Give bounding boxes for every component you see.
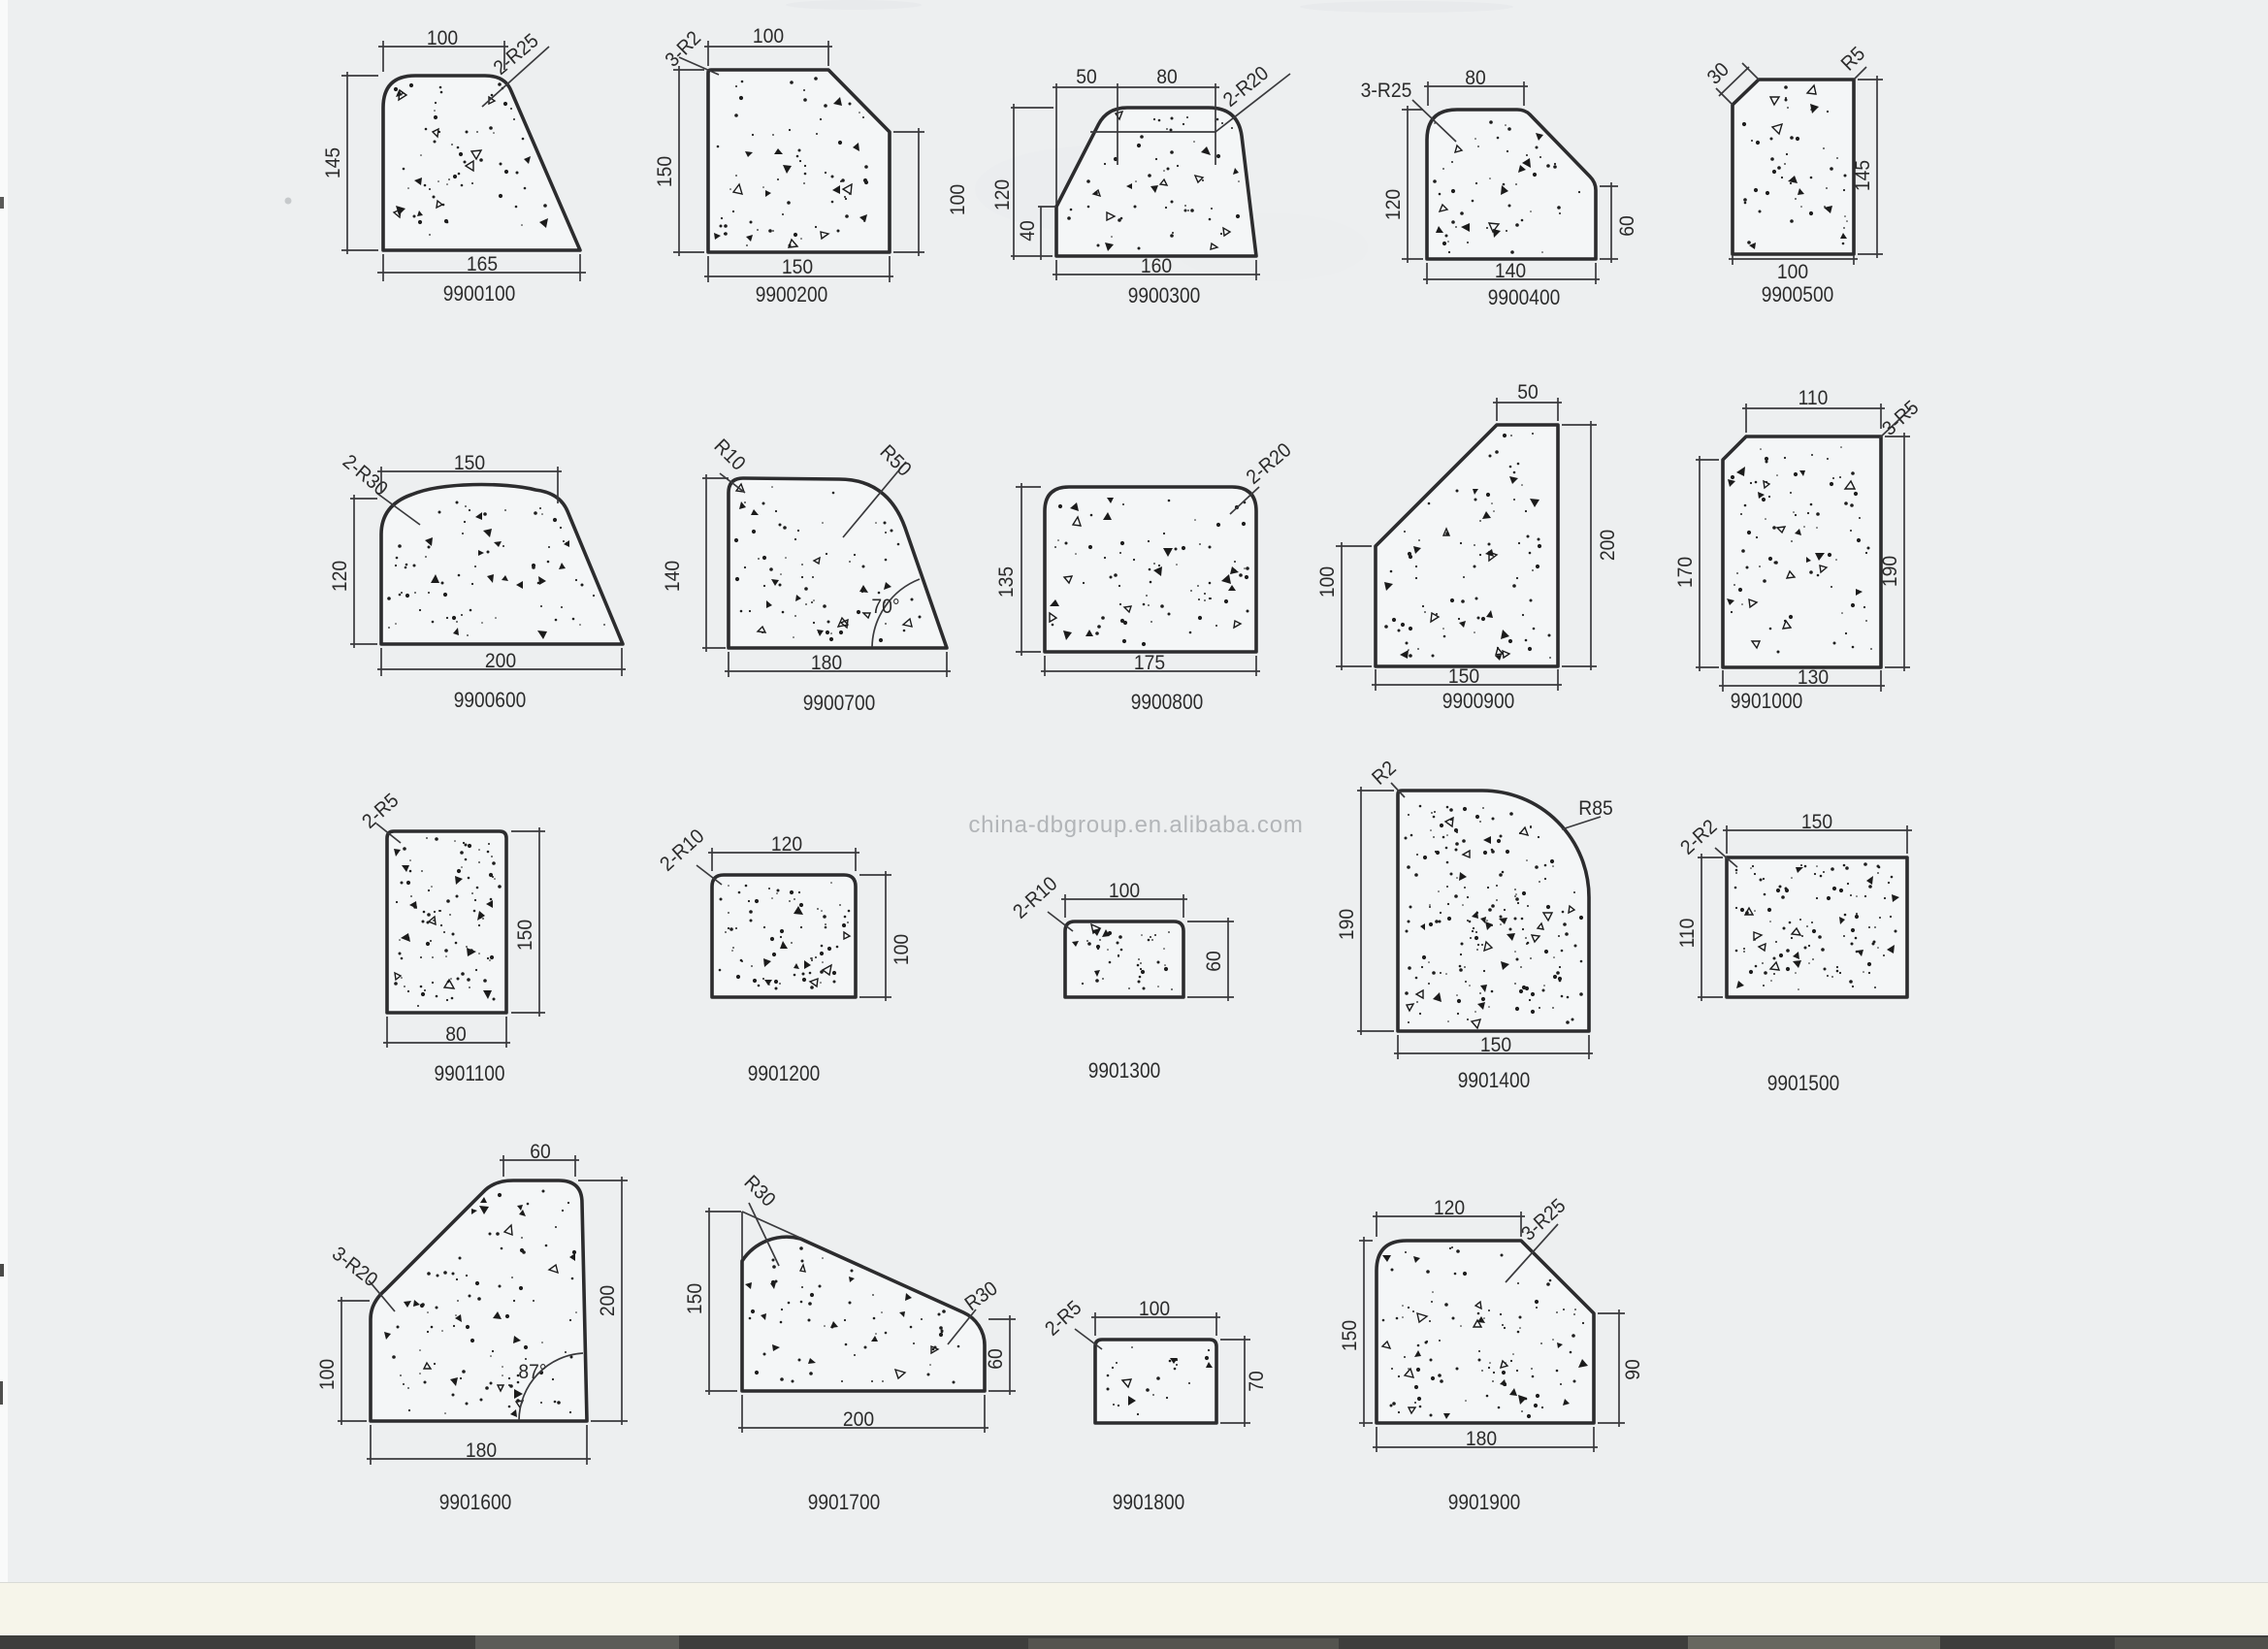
svg-text:100: 100 — [891, 934, 913, 965]
svg-text:135: 135 — [995, 566, 1018, 598]
svg-text:150: 150 — [1480, 1034, 1511, 1056]
svg-text:150: 150 — [654, 156, 676, 187]
svg-text:R85: R85 — [1578, 797, 1612, 820]
svg-text:100: 100 — [753, 25, 784, 48]
svg-text:150: 150 — [1448, 665, 1479, 688]
svg-text:70°: 70° — [871, 596, 899, 618]
svg-text:165: 165 — [467, 253, 498, 275]
svg-text:200: 200 — [485, 650, 516, 672]
svg-text:9901600: 9901600 — [439, 1491, 511, 1515]
svg-text:9900800: 9900800 — [1131, 691, 1203, 715]
svg-text:120: 120 — [771, 833, 802, 856]
svg-text:80: 80 — [445, 1023, 467, 1046]
svg-text:9901100: 9901100 — [434, 1062, 504, 1086]
svg-text:180: 180 — [811, 652, 842, 674]
svg-text:china-dbgroup.en.alibaba.com: china-dbgroup.en.alibaba.com — [968, 812, 1303, 838]
svg-text:9900100: 9900100 — [443, 282, 515, 307]
svg-text:180: 180 — [466, 1439, 497, 1462]
svg-text:40: 40 — [1017, 220, 1039, 242]
svg-text:100: 100 — [427, 27, 458, 49]
svg-text:145: 145 — [1852, 160, 1874, 191]
svg-text:9901800: 9901800 — [1113, 1491, 1184, 1515]
svg-text:50: 50 — [1076, 66, 1097, 88]
svg-text:140: 140 — [662, 561, 684, 592]
svg-text:9901500: 9901500 — [1767, 1072, 1839, 1096]
svg-text:9900700: 9900700 — [803, 692, 875, 716]
svg-text:80: 80 — [1465, 67, 1486, 89]
svg-text:9901700: 9901700 — [808, 1491, 880, 1515]
svg-text:9901000: 9901000 — [1731, 690, 1802, 714]
svg-text:150: 150 — [1801, 811, 1832, 833]
svg-text:150: 150 — [782, 256, 813, 278]
svg-text:130: 130 — [1798, 666, 1829, 689]
svg-text:9901300: 9901300 — [1088, 1059, 1160, 1083]
svg-text:200: 200 — [1597, 530, 1619, 561]
svg-text:150: 150 — [454, 452, 485, 474]
svg-text:120: 120 — [1434, 1197, 1465, 1219]
svg-text:60: 60 — [530, 1141, 551, 1163]
svg-text:70: 70 — [1246, 1371, 1268, 1392]
svg-text:190: 190 — [1336, 909, 1358, 940]
svg-text:100: 100 — [1109, 880, 1140, 902]
svg-text:9900200: 9900200 — [756, 283, 827, 307]
svg-text:145: 145 — [322, 147, 344, 178]
svg-text:180: 180 — [1466, 1428, 1497, 1450]
svg-text:175: 175 — [1134, 652, 1165, 674]
svg-text:160: 160 — [1141, 255, 1172, 277]
svg-text:9900500: 9900500 — [1762, 283, 1833, 307]
svg-text:100: 100 — [947, 184, 969, 215]
svg-text:120: 120 — [329, 561, 351, 592]
svg-text:190: 190 — [1879, 556, 1901, 587]
svg-text:140: 140 — [1495, 260, 1526, 282]
svg-text:100: 100 — [316, 1359, 339, 1390]
svg-text:9901900: 9901900 — [1448, 1491, 1520, 1515]
svg-text:110: 110 — [1798, 387, 1829, 409]
svg-text:90: 90 — [1622, 1359, 1644, 1380]
svg-text:150: 150 — [514, 920, 536, 951]
svg-text:9900600: 9900600 — [454, 689, 526, 713]
svg-text:9901400: 9901400 — [1458, 1069, 1530, 1093]
svg-text:100: 100 — [1316, 566, 1339, 598]
svg-text:3-R25: 3-R25 — [1361, 80, 1412, 102]
svg-text:60: 60 — [985, 1348, 1007, 1370]
svg-text:100: 100 — [1777, 261, 1808, 283]
svg-text:170: 170 — [1674, 557, 1697, 588]
svg-text:50: 50 — [1517, 381, 1539, 404]
svg-text:9900300: 9900300 — [1128, 284, 1200, 308]
svg-text:60: 60 — [1616, 215, 1638, 237]
svg-text:150: 150 — [684, 1283, 706, 1314]
svg-text:60: 60 — [1203, 951, 1225, 972]
svg-text:110: 110 — [1676, 919, 1699, 949]
svg-text:120: 120 — [991, 179, 1014, 210]
svg-text:9900900: 9900900 — [1442, 690, 1514, 714]
svg-text:200: 200 — [843, 1408, 874, 1431]
svg-text:9900400: 9900400 — [1488, 286, 1560, 310]
svg-text:100: 100 — [1139, 1298, 1170, 1320]
svg-text:80: 80 — [1156, 66, 1178, 88]
svg-text:200: 200 — [597, 1285, 619, 1316]
svg-text:150: 150 — [1339, 1320, 1361, 1351]
svg-text:120: 120 — [1382, 189, 1405, 220]
svg-text:9901200: 9901200 — [748, 1062, 820, 1086]
svg-text:87°: 87° — [518, 1361, 546, 1383]
